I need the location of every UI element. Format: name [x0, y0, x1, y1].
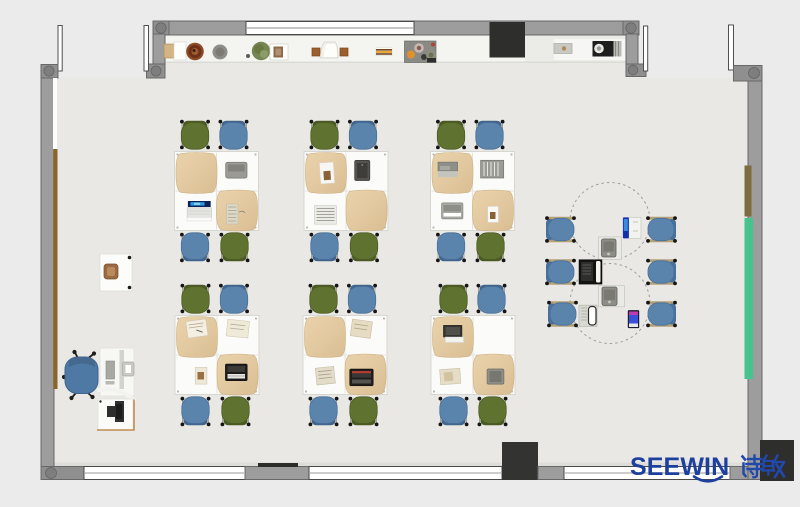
svg-text:SEEWIN: SEEWIN — [630, 453, 729, 481]
